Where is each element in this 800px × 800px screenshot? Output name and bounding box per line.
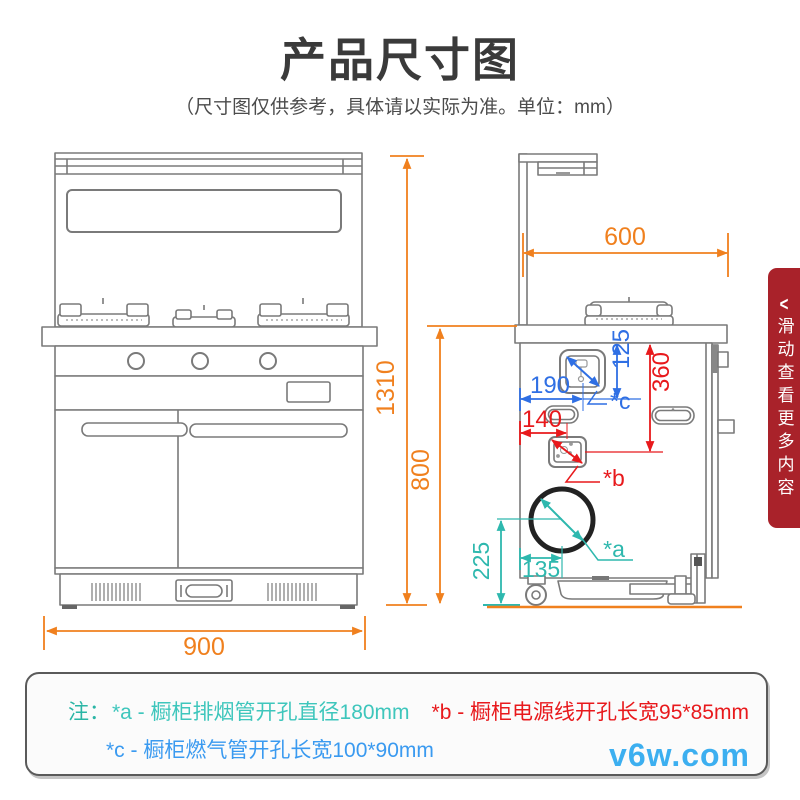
hole-b-label: *b [603, 465, 625, 491]
dim-depth: 600 [604, 223, 646, 251]
dim-hole-a-left: 135 [522, 556, 560, 582]
note-prefix: 注： [68, 701, 110, 724]
leveling-foot [675, 576, 686, 594]
knob [128, 353, 144, 369]
front-view [42, 153, 377, 609]
page-title: 产品尺寸图 [0, 24, 800, 90]
knob [192, 353, 208, 369]
door-handle-right [190, 424, 347, 437]
knob [260, 353, 276, 369]
note-hole-c: *c - 橱柜燃气管开孔长宽100*90mm [106, 739, 434, 762]
watermark: v6w.com [609, 737, 750, 774]
hood-window [67, 190, 341, 232]
note-line-2: *c - 橱柜燃气管开孔长宽100*90mm [106, 734, 434, 764]
page-subtitle: （尺寸图仅供参考，具体请以实际为准。单位：mm） [0, 92, 800, 119]
note-line-1: 注：*a - 橱柜排烟管开孔直径180mm*b - 橱柜电源线开孔长宽95*85… [68, 696, 749, 726]
dim-hole-c-left: 190 [530, 372, 570, 399]
dim-hole-a-bottom: 225 [468, 542, 494, 580]
dim-total-height: 1310 [372, 360, 400, 416]
dim-front-width: 900 [183, 633, 225, 660]
dim-hole-b-left: 140 [522, 406, 562, 433]
hinge-tab [718, 420, 734, 433]
notes-panel: 注：*a - 橱柜排烟管开孔直径180mm*b - 橱柜电源线开孔长宽95*85… [25, 672, 768, 776]
hinge-tab [718, 352, 728, 367]
dim-hole-c-top: 125 [608, 329, 635, 369]
display-window [287, 382, 330, 402]
hole-a-label: *a [603, 536, 625, 562]
note-hole-a: *a - 橱柜排烟管开孔直径180mm [112, 701, 410, 724]
product-dimension-drawing: 900 1310 800 600 190 125 *c 360 140 *b *… [0, 140, 800, 660]
chevron-left-icon: < [780, 293, 789, 315]
slide-more-banner[interactable]: < 滑动查看更多内容 [768, 268, 800, 528]
dim-counter-height: 800 [407, 449, 435, 491]
slide-more-label: 滑动查看更多内容 [776, 317, 793, 501]
dim-hole-b-top: 360 [648, 352, 675, 392]
hole-c-label: *c [610, 388, 630, 414]
note-hole-b: *b - 橱柜电源线开孔长宽95*85mm [432, 701, 749, 724]
door-handle-left [82, 423, 187, 436]
countertop-front [42, 327, 377, 346]
